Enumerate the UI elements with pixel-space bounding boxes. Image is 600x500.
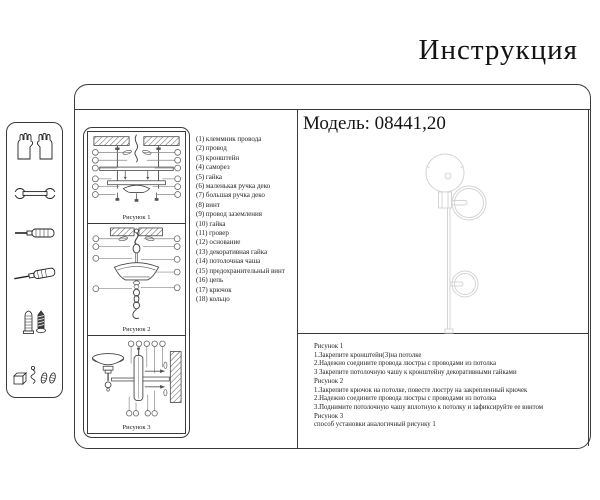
figure-2-cell: Рисунок 2 xyxy=(88,224,185,336)
part-item: (8) винт xyxy=(196,201,298,210)
right-inner-border xyxy=(588,109,589,446)
part-item: (18) кольцо xyxy=(196,295,298,304)
assembly-instructions: Рисунок 1 1.Закрепите кронштейн(3)на пот… xyxy=(314,343,576,430)
instruction-line: 3.Поднимите потолочную чашу вплотную к п… xyxy=(314,404,576,413)
instruction-line: Рисунок 2 xyxy=(314,378,576,387)
model-label: Модель: 08441,20 xyxy=(303,113,446,135)
screwdriver-icon xyxy=(14,227,56,239)
tools-sidebar xyxy=(6,122,63,398)
instruction-line: 1.Закрепите кронштейн(3)на потолке xyxy=(314,352,576,361)
wall-plug-and-screw-icon xyxy=(22,310,47,337)
figure-2-diagram xyxy=(88,225,185,323)
figures-panel: Рисунок 1 xyxy=(83,127,190,438)
part-item: (17) крючок xyxy=(196,286,298,295)
figure-1-cell: Рисунок 1 xyxy=(88,132,185,224)
header-divider xyxy=(75,109,590,110)
instruction-line: 2.Надежно соедините провода люстры с про… xyxy=(314,395,576,404)
page-title: Инструкция xyxy=(419,34,578,67)
hardware-parts-icon xyxy=(13,364,57,387)
wrench-icon xyxy=(14,187,56,200)
screwdriver-angled-icon xyxy=(13,266,57,283)
figure-3-cell: Рисунок 3 xyxy=(88,336,185,433)
instruction-line: 1.Закрепите крючок на потолке, повесте л… xyxy=(314,387,576,396)
part-item: (11) гровер xyxy=(196,229,298,238)
part-item: (10) гайка xyxy=(196,220,298,229)
instruction-line: Рисунок 3 xyxy=(314,413,576,422)
instruction-line: способ установки аналогичный рисунку 1 xyxy=(314,421,576,430)
part-item: (1) клеммник провода xyxy=(196,135,298,144)
figure-1-diagram xyxy=(88,133,185,209)
part-item: (14) потолочная чаша xyxy=(196,257,298,266)
instruction-line: 2.Надежно соедините провода люстры с про… xyxy=(314,360,576,369)
part-item: (6) маленькая ручка деко xyxy=(196,182,298,191)
part-item: (16) цепь xyxy=(196,276,298,285)
part-item: (3) кронштейн xyxy=(196,154,298,163)
gloves-icon xyxy=(16,133,54,160)
figure-2-caption: Рисунок 2 xyxy=(88,326,185,333)
instruction-line: 3 Закрепите потолочную чашу к кронштейну… xyxy=(314,369,576,378)
part-item: (4) саморез xyxy=(196,163,298,172)
part-item: (12) основание xyxy=(196,238,298,247)
part-item: (15) предохранительный винт xyxy=(196,267,298,276)
figure-3-diagram xyxy=(88,337,185,421)
instruction-line: Рисунок 1 xyxy=(314,343,576,352)
parts-list: (1) клеммник провода (2) провод (3) крон… xyxy=(196,135,298,304)
wall-lamp-drawing xyxy=(388,146,528,336)
part-item: (2) провод xyxy=(196,144,298,153)
part-item: (7) большая ручка деко xyxy=(196,191,298,200)
figure-3-caption: Рисунок 3 xyxy=(88,424,185,431)
part-item: (13) декоративная гайка xyxy=(196,248,298,257)
part-item: (5) гайка xyxy=(196,173,298,182)
part-item: (9) провод заземления xyxy=(196,210,298,219)
figure-1-caption: Рисунок 1 xyxy=(88,214,185,221)
